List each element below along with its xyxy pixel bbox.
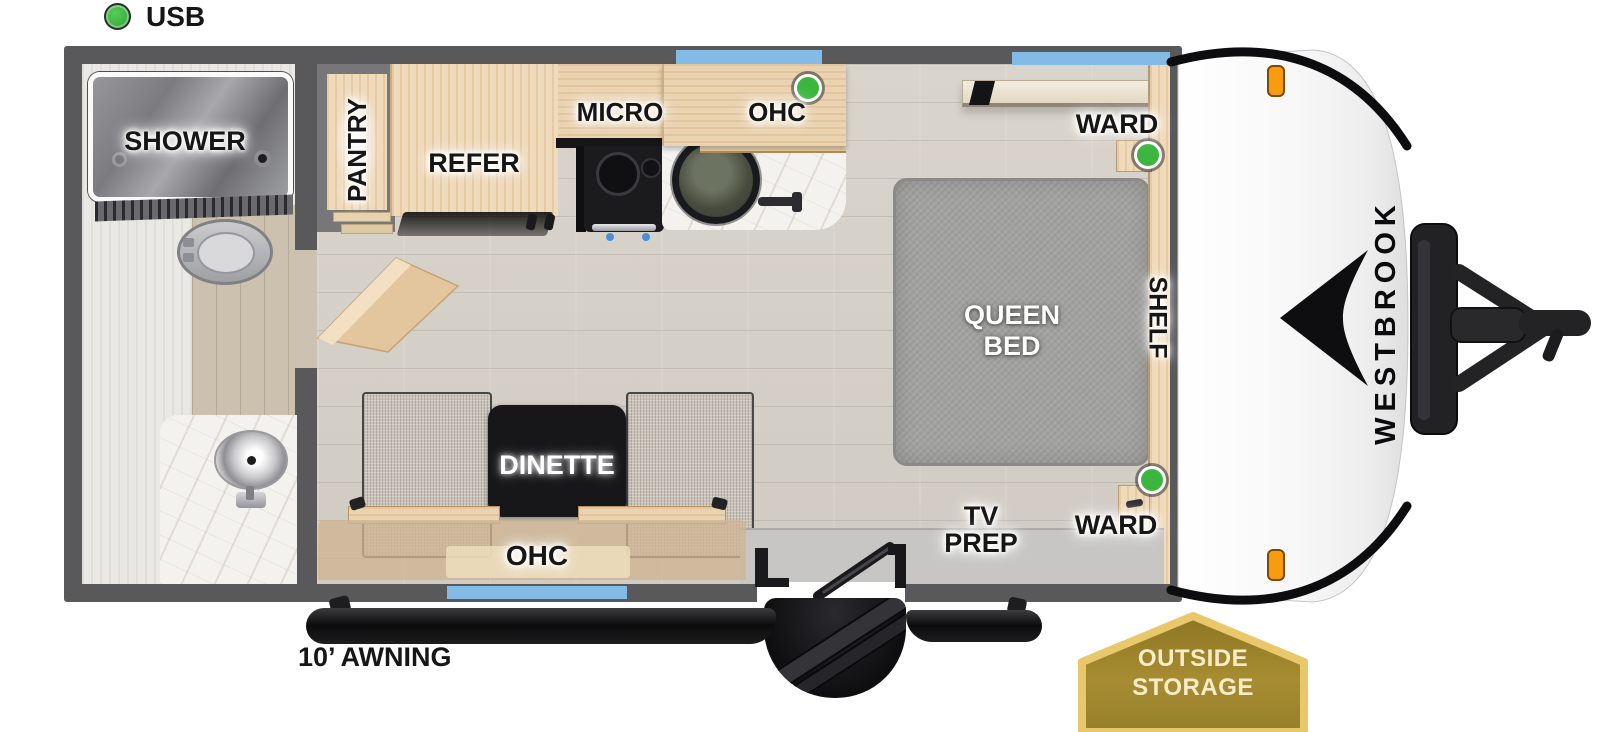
stove-knob-icon [606, 233, 614, 241]
marker-light-icon [1268, 66, 1284, 96]
window-dinette [447, 586, 627, 599]
stove-burner-icon [596, 152, 640, 196]
usb-indicator-icon [104, 3, 131, 30]
window-bedroom [1012, 52, 1170, 65]
stove-burner-icon [641, 158, 661, 178]
queen-bed-label-line2: BED [942, 333, 1082, 360]
pantry-step [341, 224, 393, 234]
tv-prep-label-line1: TV [931, 503, 1031, 530]
entry-step [764, 598, 906, 698]
outside-storage-label-line2: STORAGE [1113, 676, 1273, 700]
tv-prep-label-line2: PREP [931, 530, 1031, 557]
bathroom-sink-drain-icon [247, 456, 256, 465]
corner-wedge-shelf [300, 244, 470, 360]
queen-bed-label-line1: QUEEN [942, 302, 1082, 329]
shower-drain-icon [254, 150, 271, 167]
toilet-hinge [183, 238, 194, 247]
awning-bar-left [306, 608, 776, 644]
marker-light-icon [1268, 550, 1284, 580]
toilet-seat [197, 232, 255, 274]
bathroom-faucet-spout [246, 486, 254, 500]
awning-label: 10’ AWNING [298, 644, 458, 671]
usb-port-icon [1134, 141, 1162, 169]
usb-port-icon [1138, 466, 1166, 494]
pantry-label: PANTRY [344, 80, 370, 220]
ohc-dinette-label: OHC [487, 542, 587, 570]
ward-bottom-label: WARD [1066, 512, 1166, 539]
toilet-hinge [183, 253, 194, 262]
shower-label: SHOWER [115, 128, 255, 155]
ward-top-label: WARD [1067, 111, 1167, 138]
shelf-label: SHELF [1145, 248, 1170, 388]
hitch-jack [1451, 308, 1525, 342]
refrigerator [390, 64, 558, 216]
floorplan-canvas: USB [0, 0, 1600, 732]
dinette-label: DINETTE [497, 452, 617, 479]
ohc-kitchen-label: OHC [727, 99, 827, 125]
refer-label: REFER [414, 150, 534, 177]
outside-storage-label-line1: OUTSIDE [1113, 647, 1273, 671]
kitchen-faucet-handle [792, 192, 802, 212]
awning-bar-right [906, 610, 1042, 642]
stove-knob-icon [642, 233, 650, 241]
stove-handle [592, 224, 656, 231]
micro-label: MICRO [570, 99, 670, 125]
brand-wordmark: WESTBROOK [1370, 155, 1406, 489]
window-kitchen [676, 50, 822, 64]
legend-usb-label: USB [146, 3, 205, 31]
